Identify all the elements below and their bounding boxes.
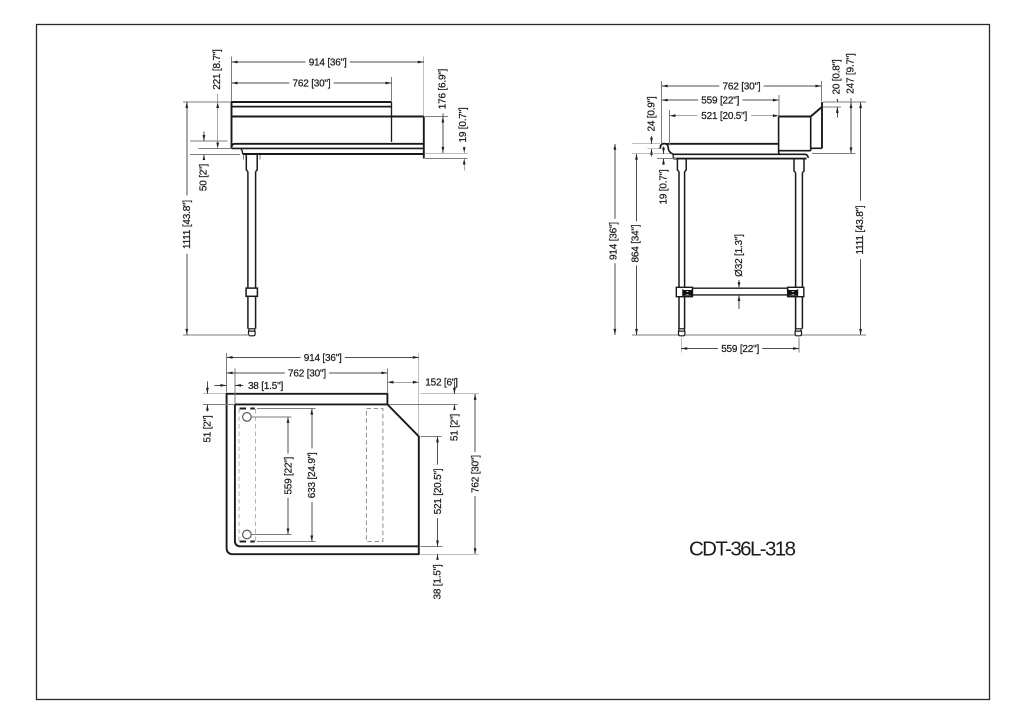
svg-text:914 [36"]: 914 [36"] <box>309 57 347 68</box>
svg-text:914 [36"]: 914 [36"] <box>304 353 342 364</box>
svg-text:1111 [43.8"]: 1111 [43.8"] <box>855 205 866 254</box>
svg-text:CDT-36L-318: CDT-36L-318 <box>689 538 796 561</box>
svg-text:521 [20.5"]: 521 [20.5"] <box>701 111 747 122</box>
svg-text:51 [2"]: 51 [2"] <box>449 413 460 441</box>
svg-text:247 [9.7"]: 247 [9.7"] <box>846 53 857 94</box>
svg-text:1111 [43.8"]: 1111 [43.8"] <box>182 200 193 249</box>
svg-text:50 [2"]: 50 [2"] <box>198 163 209 191</box>
svg-text:559 [22"]: 559 [22"] <box>701 96 739 107</box>
svg-text:176 [6.9"]: 176 [6.9"] <box>438 68 449 109</box>
svg-text:152 [6"]: 152 [6"] <box>425 378 458 389</box>
svg-text:762 [30"]: 762 [30"] <box>288 368 326 379</box>
svg-text:559 [22"]: 559 [22"] <box>721 344 759 355</box>
svg-text:521 [20.5"]: 521 [20.5"] <box>433 468 444 514</box>
svg-text:762 [30"]: 762 [30"] <box>293 78 331 89</box>
svg-text:19 [0.7"]: 19 [0.7"] <box>458 107 469 143</box>
svg-text:633 [24.9"]: 633 [24.9"] <box>307 452 318 498</box>
svg-text:20 [0.8"]: 20 [0.8"] <box>832 59 843 95</box>
svg-text:762 [30"]: 762 [30"] <box>471 455 482 493</box>
svg-text:38 [1.5"]: 38 [1.5"] <box>248 381 284 392</box>
svg-text:762 [30"]: 762 [30"] <box>723 81 761 92</box>
svg-text:24 [0.9"]: 24 [0.9"] <box>646 96 657 132</box>
svg-text:221 [8.7"]: 221 [8.7"] <box>212 49 223 90</box>
svg-text:38 [1.5"]: 38 [1.5"] <box>433 564 444 600</box>
svg-text:559 [22"]: 559 [22"] <box>283 456 294 494</box>
svg-text:864 [34"]: 864 [34"] <box>630 224 641 262</box>
svg-text:Ø32 [1.3"]: Ø32 [1.3"] <box>734 234 745 277</box>
svg-text:51 [2"]: 51 [2"] <box>202 415 213 443</box>
svg-text:19 [0.7"]: 19 [0.7"] <box>658 169 669 205</box>
svg-text:914 [36"]: 914 [36"] <box>609 222 620 260</box>
